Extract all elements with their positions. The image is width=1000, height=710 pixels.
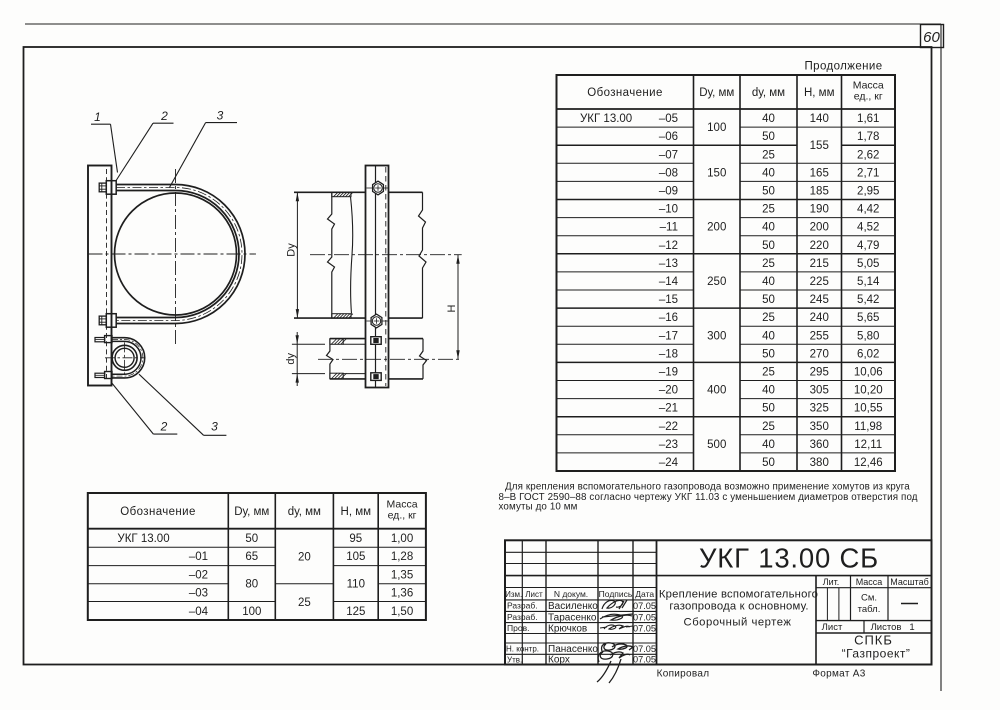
svg-text:Крючков: Крючков [548, 624, 587, 635]
svg-text:“Газпроект”: “Газпроект” [842, 647, 911, 661]
svg-text:–14: –14 [659, 276, 679, 288]
svg-text:Пров.: Пров. [507, 623, 529, 633]
svg-text:Масштаб: Масштаб [890, 577, 929, 587]
svg-text:250: 250 [707, 276, 726, 288]
svg-text:105: 105 [346, 551, 365, 563]
svg-text:40: 40 [762, 167, 775, 179]
svg-text:3: 3 [217, 109, 224, 123]
svg-text:Обозначение: Обозначение [587, 87, 663, 99]
svg-text:95: 95 [349, 533, 362, 545]
svg-text:4,79: 4,79 [857, 240, 879, 252]
svg-text:Василенко: Василенко [548, 601, 598, 612]
svg-text:–03: –03 [189, 588, 208, 600]
svg-text:155: 155 [810, 140, 829, 152]
svg-text:хомуты до 10 мм: хомуты до 10 мм [499, 502, 578, 513]
svg-text:Тарасенко: Тарасенко [548, 612, 597, 623]
svg-text:–17: –17 [659, 330, 678, 342]
svg-text:5,14: 5,14 [857, 276, 880, 288]
svg-text:40: 40 [762, 330, 775, 342]
svg-text:УКГ 13.00: УКГ 13.00 [117, 533, 169, 545]
svg-text:–16: –16 [659, 312, 678, 324]
svg-text:–05: –05 [659, 113, 678, 125]
svg-text:Разраб.: Разраб. [507, 601, 538, 611]
svg-text:6,02: 6,02 [857, 348, 879, 360]
svg-text:–06: –06 [659, 131, 678, 143]
svg-text:–15: –15 [659, 294, 678, 306]
svg-text:–12: –12 [659, 240, 678, 252]
svg-text:125: 125 [346, 606, 365, 618]
svg-text:Разраб.: Разраб. [507, 612, 538, 622]
svg-text:ед., кг: ед., кг [388, 509, 417, 521]
svg-text:3: 3 [211, 420, 218, 434]
svg-text:100: 100 [242, 606, 261, 618]
svg-text:dу, мм: dу, мм [752, 87, 785, 99]
svg-text:1,00: 1,00 [391, 533, 413, 545]
svg-text:1,50: 1,50 [391, 606, 413, 618]
svg-text:25: 25 [762, 366, 775, 378]
svg-text:1,28: 1,28 [391, 551, 413, 563]
svg-text:110: 110 [347, 579, 365, 591]
svg-text:400: 400 [707, 385, 726, 397]
svg-text:2,71: 2,71 [857, 167, 879, 179]
svg-text:Корх: Корх [548, 655, 570, 666]
svg-text:1,61: 1,61 [857, 113, 879, 125]
svg-text:–20: –20 [659, 385, 678, 397]
svg-text:–18: –18 [659, 348, 678, 360]
svg-text:1,36: 1,36 [391, 588, 413, 600]
svg-text:150: 150 [707, 167, 726, 179]
svg-text:50: 50 [762, 131, 775, 143]
svg-text:–23: –23 [659, 439, 678, 451]
svg-text:325: 325 [810, 403, 829, 415]
svg-text:240: 240 [810, 312, 829, 324]
svg-text:–21: –21 [659, 403, 678, 415]
svg-text:190: 190 [810, 204, 829, 216]
svg-text:4,52: 4,52 [857, 222, 879, 234]
svg-text:Dу, мм: Dу, мм [699, 87, 734, 99]
svg-text:40: 40 [762, 113, 775, 125]
svg-text:40: 40 [762, 276, 775, 288]
svg-text:50: 50 [762, 240, 775, 252]
svg-text:газопровода к основному.: газопровода к основному. [669, 601, 808, 613]
svg-text:07.05: 07.05 [633, 655, 656, 665]
svg-text:–10: –10 [659, 204, 678, 216]
svg-text:5,80: 5,80 [857, 330, 879, 342]
svg-text:Н. контр.: Н. контр. [506, 645, 539, 654]
svg-text:Формат А3: Формат А3 [812, 669, 865, 680]
svg-text:1: 1 [94, 110, 101, 124]
svg-text:dу: dу [285, 352, 297, 364]
svg-text:50: 50 [762, 348, 775, 360]
svg-text:25: 25 [762, 149, 775, 161]
svg-text:Масса: Масса [856, 577, 883, 587]
svg-text:–24: –24 [659, 457, 679, 469]
svg-text:50: 50 [762, 294, 775, 306]
svg-text:Панасенко: Панасенко [548, 644, 598, 655]
svg-text:380: 380 [810, 457, 829, 469]
svg-text:360: 360 [810, 439, 829, 451]
svg-text:Dу, мм: Dу, мм [234, 506, 269, 518]
svg-text:Лист: Лист [525, 590, 543, 599]
svg-text:200: 200 [810, 222, 829, 234]
svg-text:–09: –09 [659, 185, 678, 197]
svg-text:Сборочный чертеж: Сборочный чертеж [684, 617, 792, 629]
svg-text:Утв.: Утв. [507, 655, 522, 664]
svg-text:2: 2 [160, 420, 168, 434]
svg-text:220: 220 [810, 240, 829, 252]
svg-text:УКГ 13.00: УКГ 13.00 [580, 113, 632, 125]
svg-text:–13: –13 [659, 258, 678, 270]
svg-text:10,20: 10,20 [854, 385, 883, 397]
svg-text:300: 300 [707, 330, 726, 342]
svg-text:Продолжение: Продолжение [804, 61, 882, 73]
svg-text:Н, мм: Н, мм [804, 87, 835, 99]
svg-text:40: 40 [762, 222, 775, 234]
svg-text:Обозначение: Обозначение [120, 506, 196, 518]
svg-text:165: 165 [810, 167, 829, 179]
svg-text:Листов: Листов [871, 622, 902, 633]
svg-text:2,62: 2,62 [857, 149, 879, 161]
svg-text:dу, мм: dу, мм [288, 506, 321, 518]
svg-text:4,42: 4,42 [857, 204, 879, 216]
svg-text:–07: –07 [659, 149, 678, 161]
svg-text:25: 25 [762, 421, 775, 433]
svg-text:2: 2 [160, 109, 168, 123]
svg-text:20: 20 [298, 551, 311, 563]
svg-text:25: 25 [762, 204, 775, 216]
svg-text:100: 100 [707, 122, 726, 134]
svg-text:350: 350 [810, 421, 829, 433]
svg-text:50: 50 [762, 457, 775, 469]
svg-text:50: 50 [762, 403, 775, 415]
svg-text:–08: –08 [659, 167, 678, 179]
svg-text:ед., кг: ед., кг [854, 91, 883, 103]
svg-text:N докум.: N докум. [554, 589, 588, 599]
svg-text:40: 40 [762, 385, 775, 397]
svg-text:25: 25 [762, 258, 775, 270]
svg-text:305: 305 [810, 385, 829, 397]
svg-text:60: 60 [923, 29, 940, 46]
svg-text:10,06: 10,06 [854, 366, 883, 378]
svg-text:140: 140 [810, 113, 829, 125]
svg-text:255: 255 [810, 330, 829, 342]
svg-text:Dу: Dу [286, 243, 298, 257]
svg-text:Н, мм: Н, мм [341, 506, 372, 518]
svg-text:1: 1 [909, 622, 914, 633]
svg-text:5,05: 5,05 [857, 258, 879, 270]
svg-text:07.05: 07.05 [633, 612, 656, 622]
svg-text:185: 185 [810, 185, 829, 197]
svg-text:2,95: 2,95 [857, 185, 879, 197]
svg-text:–02: –02 [189, 569, 208, 581]
svg-text:50: 50 [245, 533, 258, 545]
svg-text:11,98: 11,98 [854, 421, 882, 433]
svg-text:40: 40 [762, 439, 775, 451]
svg-text:Крепление вспомогательного: Крепление вспомогательного [659, 589, 818, 601]
svg-text:УКГ 13.00 СБ: УКГ 13.00 СБ [699, 543, 879, 574]
svg-text:Лист: Лист [822, 622, 843, 633]
svg-text:50: 50 [762, 185, 775, 197]
svg-text:200: 200 [707, 222, 726, 234]
svg-text:270: 270 [810, 348, 829, 360]
svg-text:25: 25 [298, 597, 311, 609]
svg-text:12,11: 12,11 [854, 439, 882, 451]
svg-text:Изм.: Изм. [505, 590, 522, 599]
svg-text:215: 215 [810, 258, 829, 270]
svg-text:295: 295 [810, 366, 829, 378]
svg-text:–11: –11 [660, 222, 678, 234]
svg-text:07.05: 07.05 [633, 644, 656, 654]
svg-text:225: 225 [810, 276, 829, 288]
svg-text:80: 80 [245, 579, 258, 591]
svg-text:25: 25 [762, 312, 775, 324]
svg-text:табл.: табл. [858, 604, 881, 615]
svg-text:07.05: 07.05 [633, 624, 656, 634]
svg-text:5,65: 5,65 [857, 312, 879, 324]
svg-text:Подпись: Подпись [599, 589, 633, 599]
svg-text:–01: –01 [189, 551, 208, 563]
svg-text:12,46: 12,46 [854, 457, 883, 469]
svg-text:–22: –22 [659, 421, 678, 433]
svg-text:65: 65 [245, 551, 258, 563]
svg-text:Н: Н [446, 304, 458, 312]
svg-text:1,35: 1,35 [391, 569, 413, 581]
svg-text:Копировал: Копировал [657, 669, 710, 680]
svg-text:245: 245 [810, 294, 829, 306]
svg-text:500: 500 [707, 439, 726, 451]
svg-text:07.05: 07.05 [633, 601, 656, 611]
svg-text:10,55: 10,55 [854, 403, 883, 415]
svg-text:5,42: 5,42 [857, 294, 879, 306]
svg-text:Лит.: Лит. [823, 577, 840, 587]
svg-text:1,78: 1,78 [857, 131, 879, 143]
svg-text:Дата: Дата [635, 589, 654, 599]
svg-text:–04: –04 [189, 606, 209, 618]
svg-text:См.: См. [861, 593, 877, 604]
svg-text:СПКБ: СПКБ [854, 633, 893, 648]
svg-text:–19: –19 [659, 366, 678, 378]
